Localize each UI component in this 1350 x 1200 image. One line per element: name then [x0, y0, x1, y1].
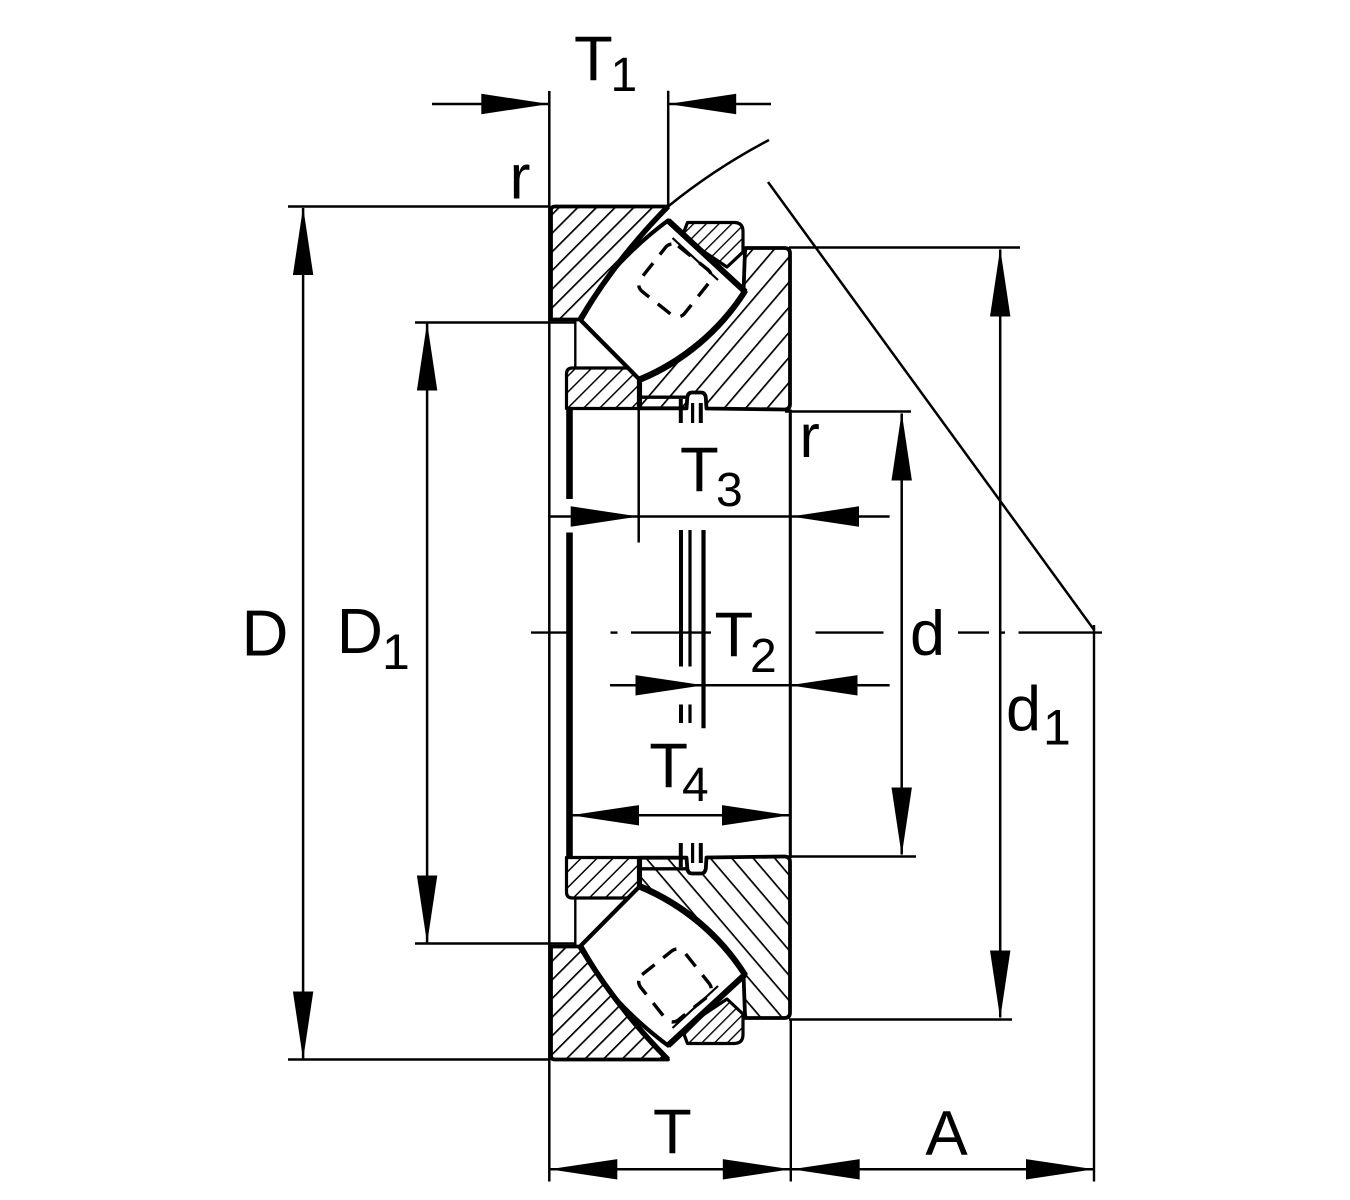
svg-text:3: 3 — [716, 464, 743, 517]
svg-text:d: d — [1006, 675, 1041, 745]
svg-text:1: 1 — [1043, 700, 1071, 756]
svg-text:r: r — [800, 402, 820, 470]
svg-text:D: D — [242, 597, 289, 670]
svg-text:4: 4 — [682, 759, 709, 812]
svg-text:1: 1 — [382, 624, 410, 680]
svg-text:T: T — [680, 435, 719, 505]
svg-text:T: T — [653, 1097, 692, 1167]
svg-text:T: T — [715, 600, 754, 670]
svg-text:A: A — [925, 1099, 968, 1169]
svg-text:2: 2 — [750, 630, 777, 683]
svg-text:r: r — [510, 143, 531, 213]
svg-text:T: T — [574, 24, 613, 94]
svg-text:1: 1 — [611, 49, 638, 102]
svg-text:D: D — [337, 595, 383, 667]
svg-text:d: d — [910, 599, 945, 669]
